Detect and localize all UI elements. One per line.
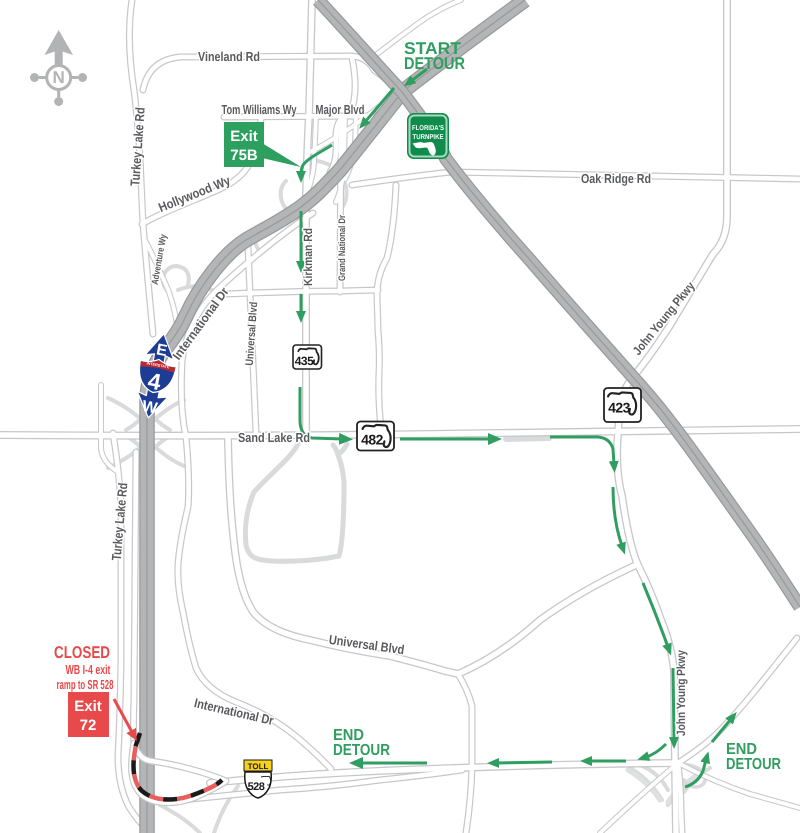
svg-text:Major Blvd: Major Blvd bbox=[316, 102, 365, 117]
svg-text:FLORIDA'S: FLORIDA'S bbox=[412, 125, 444, 132]
svg-text:TURNPIKE: TURNPIKE bbox=[413, 134, 444, 141]
svg-text:Kirkman Rd: Kirkman Rd bbox=[301, 228, 315, 286]
svg-text:Exit: Exit bbox=[74, 698, 102, 715]
svg-text:Oak Ridge Rd: Oak Ridge Rd bbox=[581, 171, 651, 186]
svg-text:DETOUR: DETOUR bbox=[333, 742, 390, 759]
svg-text:WB I-4 exit: WB I-4 exit bbox=[66, 662, 111, 677]
svg-text:TOLL: TOLL bbox=[248, 762, 269, 771]
svg-text:72: 72 bbox=[80, 717, 97, 734]
svg-text:Sand Lake Rd: Sand Lake Rd bbox=[238, 430, 310, 445]
svg-text:Grand National Dr: Grand National Dr bbox=[337, 215, 348, 281]
svg-text:435: 435 bbox=[295, 354, 314, 368]
svg-text:482: 482 bbox=[361, 432, 384, 448]
svg-text:75B: 75B bbox=[230, 147, 258, 164]
svg-text:423: 423 bbox=[608, 400, 631, 416]
svg-text:528: 528 bbox=[248, 781, 265, 793]
svg-text:DETOUR: DETOUR bbox=[404, 54, 465, 73]
svg-text:DETOUR: DETOUR bbox=[726, 756, 781, 773]
svg-text:Tom Williams Wy: Tom Williams Wy bbox=[222, 102, 298, 117]
svg-text:Vineland Rd: Vineland Rd bbox=[198, 49, 260, 64]
svg-text:John Young Pkwy: John Young Pkwy bbox=[674, 650, 688, 736]
svg-text:ramp to SR 528: ramp to SR 528 bbox=[57, 677, 114, 692]
svg-text:N: N bbox=[53, 68, 65, 87]
svg-text:CLOSED: CLOSED bbox=[54, 643, 110, 662]
svg-text:Exit: Exit bbox=[230, 128, 258, 145]
